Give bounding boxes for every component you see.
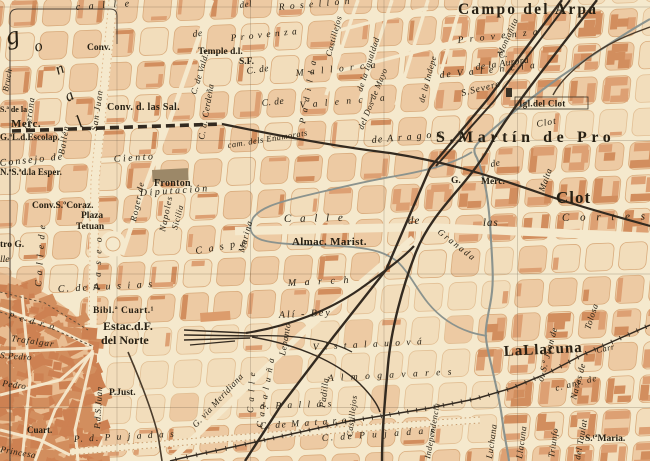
svg-text:N.ªS.ªd.la Esper.: N.ªS.ªd.la Esper. <box>0 167 62 177</box>
svg-text:P a s e o: P a s e o <box>93 235 105 291</box>
svg-text:del Norte: del Norte <box>101 333 149 347</box>
svg-text:Igl.del Clot: Igl.del Clot <box>519 99 566 109</box>
svg-text:C a l l e: C a l l e <box>284 212 346 225</box>
svg-text:G.ªL.d.Escolap.: G.ªL.d.Escolap. <box>0 132 60 142</box>
svg-text:Plaza: Plaza <box>81 211 103 221</box>
svg-text:lle: lle <box>0 255 10 265</box>
svg-text:G.: G. <box>451 176 461 186</box>
svg-text:del: del <box>239 0 253 10</box>
svg-text:Clot: Clot <box>556 188 591 207</box>
svg-text:Conv.S.ºCoraz.: Conv.S.ºCoraz. <box>32 201 93 211</box>
svg-text:Merc.: Merc. <box>481 177 505 187</box>
svg-text:Tetuan: Tetuan <box>76 222 105 232</box>
svg-text:de: de <box>490 158 502 170</box>
svg-text:Conv.: Conv. <box>87 43 111 53</box>
svg-text:S.ª de la: S.ª de la <box>0 105 27 114</box>
svg-text:tro G.: tro G. <box>0 240 24 250</box>
svg-text:Conv. d. las Sal.: Conv. d. las Sal. <box>107 102 180 113</box>
svg-text:S.ᵗªMaria.: S.ᵗªMaria. <box>585 434 625 444</box>
svg-text:S.Martín de Pro: S.Martín de Pro <box>436 129 615 146</box>
svg-text:P.Just.: P.Just. <box>109 388 136 398</box>
svg-text:Campo del Arpa: Campo del Arpa <box>458 1 598 18</box>
svg-text:Estac.d.F.: Estac.d.F. <box>103 319 153 333</box>
svg-text:Cuart.: Cuart. <box>27 425 52 435</box>
svg-text:Bibl.ª Cuart.¹: Bibl.ª Cuart.¹ <box>93 306 154 316</box>
svg-text:Almac. Marist.: Almac. Marist. <box>292 236 367 248</box>
svg-text:de: de <box>192 29 203 40</box>
svg-text:las: las <box>483 217 499 229</box>
svg-text:C o r t e s: C o r t e s <box>562 210 649 224</box>
svg-text:de: de <box>408 215 421 227</box>
